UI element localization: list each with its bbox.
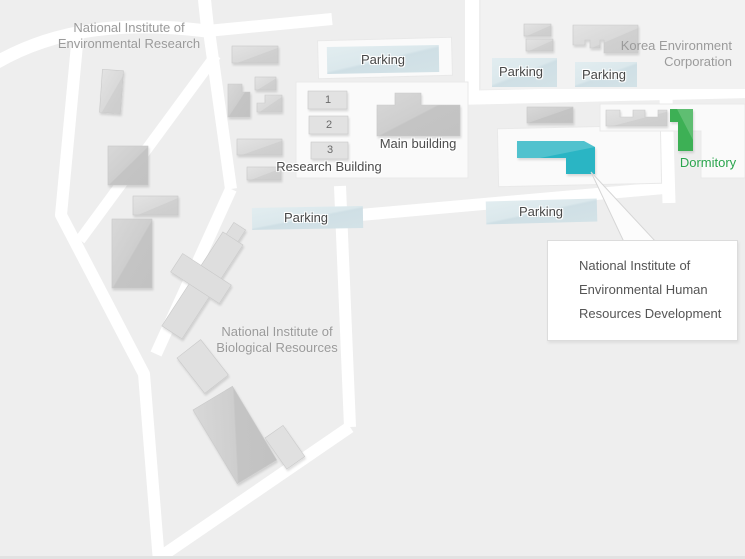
building-comb [606, 110, 667, 126]
label-unit-3: 3 [327, 142, 333, 158]
label-parking-top: Parking [361, 52, 405, 68]
campus-map: National Institute of Environmental Rese… [0, 0, 745, 559]
building-nier-3 [133, 196, 178, 215]
label-nier-line1: National Institute of [58, 20, 200, 36]
label-nibr-line1: National Institute of [216, 324, 337, 340]
label-parking-west: Parking [284, 210, 328, 226]
label-parking-northeast-1: Parking [499, 64, 543, 80]
label-nibr: National Institute of Biological Resourc… [216, 324, 337, 356]
building-nier-2 [108, 146, 148, 185]
label-unit-1: 1 [325, 92, 331, 108]
building-cluster-5 [237, 139, 282, 155]
callout-line1: National Institute of [579, 254, 737, 278]
building-east-1 [527, 107, 573, 123]
label-parking-east: Parking [519, 204, 563, 220]
label-nibr-line2: Biological Resources [216, 340, 337, 356]
label-dormitory: Dormitory [680, 155, 736, 171]
building-nier-1 [99, 69, 123, 113]
label-unit-2: 2 [326, 117, 332, 133]
label-kec-line2: Corporation [621, 54, 732, 70]
label-nier: National Institute of Environmental Rese… [58, 20, 200, 52]
label-nier-line2: Environmental Research [58, 36, 200, 52]
label-kec-line1: Korea Environment [621, 38, 732, 54]
callout-line2: Environmental Human [579, 278, 737, 302]
building-nier-4 [112, 219, 152, 288]
label-kec: Korea Environment Corporation [621, 38, 732, 70]
callout-line3: Resources Development [579, 302, 737, 326]
building-kec-1 [524, 24, 551, 36]
label-research-building: Research Building [276, 159, 382, 175]
building-cluster-3 [255, 77, 276, 90]
label-parking-northeast-2: Parking [582, 67, 626, 83]
label-main-building: Main building [380, 136, 457, 152]
building-cluster-1 [232, 46, 278, 63]
building-kec-2 [526, 39, 553, 51]
callout-nie-hrd: National Institute of Environmental Huma… [547, 240, 738, 341]
